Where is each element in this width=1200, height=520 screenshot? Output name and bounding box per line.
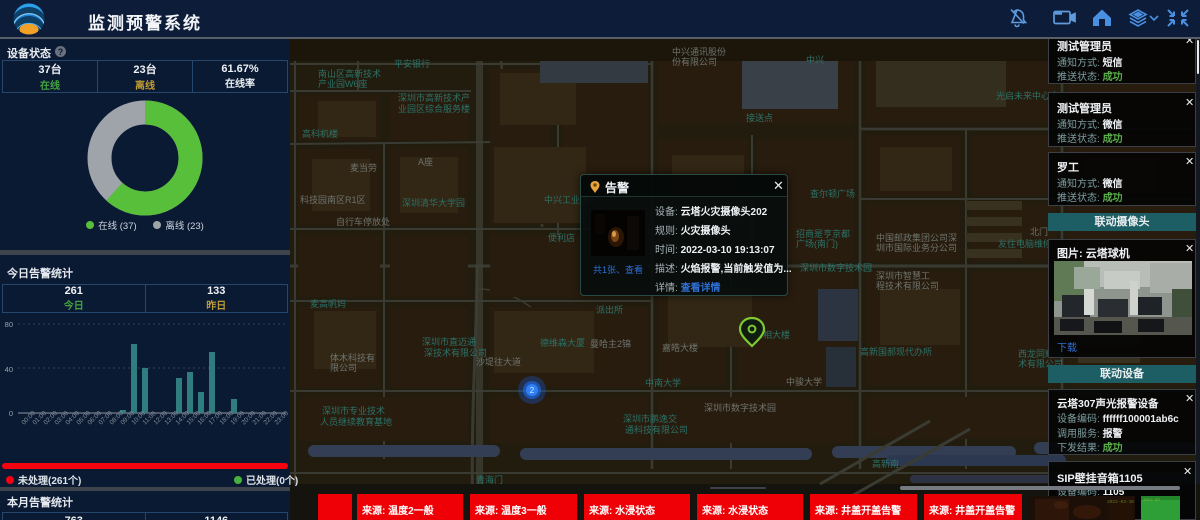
svg-text:德维森大厦: 德维森大厦 bbox=[540, 337, 585, 348]
svg-text:麦当劳: 麦当劳 bbox=[350, 162, 377, 173]
svg-text:中兴: 中兴 bbox=[806, 54, 824, 65]
svg-text:程技术有限公司: 程技术有限公司 bbox=[876, 280, 939, 291]
svg-text:北门: 北门 bbox=[1030, 226, 1048, 237]
svg-text:中南大学: 中南大学 bbox=[645, 377, 681, 388]
svg-text:限公司: 限公司 bbox=[330, 363, 357, 373]
svg-text:2: 2 bbox=[530, 386, 535, 395]
svg-text:深圳市专业技术: 深圳市专业技术 bbox=[322, 405, 385, 416]
svg-text:A座: A座 bbox=[418, 156, 433, 167]
svg-text:中骏大学: 中骏大学 bbox=[786, 376, 822, 387]
svg-text:份有限公司: 份有限公司 bbox=[672, 56, 717, 67]
svg-text:40: 40 bbox=[5, 365, 13, 374]
svg-text:南山区高新技术: 南山区高新技术 bbox=[318, 68, 381, 79]
svg-text:通科技有限公司: 通科技有限公司 bbox=[625, 424, 688, 435]
svg-text:青海门: 青海门 bbox=[476, 474, 503, 485]
svg-text:高科机楼: 高科机楼 bbox=[302, 128, 338, 139]
svg-text:2022-03: 2022-03 bbox=[1143, 499, 1160, 503]
svg-text:人员继续教育基地: 人员继续教育基地 bbox=[320, 416, 392, 427]
svg-text:科技园南区R1区: 科技园南区R1区 bbox=[300, 194, 366, 205]
svg-text:2022-03-10: 2022-03-10 bbox=[1107, 499, 1134, 505]
svg-text:平安银行: 平安银行 bbox=[394, 58, 430, 69]
svg-text:高新南: 高新南 bbox=[872, 458, 899, 469]
svg-text:接送点: 接送点 bbox=[746, 112, 773, 123]
svg-text:广场(南门): 广场(南门) bbox=[796, 238, 838, 249]
svg-text:深圳市直迈通: 深圳市直迈通 bbox=[422, 336, 476, 347]
svg-text:深圳市鹏逸交: 深圳市鹏逸交 bbox=[623, 413, 677, 424]
svg-text:麦高帆妈: 麦高帆妈 bbox=[310, 298, 346, 309]
svg-text:派出所: 派出所 bbox=[596, 304, 623, 315]
svg-text:0: 0 bbox=[9, 409, 13, 418]
svg-text:体木科技有: 体木科技有 bbox=[330, 352, 375, 363]
svg-text:圳市国际业务分公司: 圳市国际业务分公司 bbox=[876, 242, 957, 253]
svg-text:80: 80 bbox=[5, 320, 13, 329]
svg-text:深圳清华大学园: 深圳清华大学园 bbox=[402, 197, 465, 208]
svg-text:中兴通讯股份: 中兴通讯股份 bbox=[672, 46, 726, 57]
svg-text:查尔顿广场: 查尔顿广场 bbox=[810, 188, 855, 199]
svg-text:产业园W6座: 产业园W6座 bbox=[318, 78, 368, 89]
svg-text:深圳市高新技术产: 深圳市高新技术产 bbox=[398, 92, 470, 103]
svg-text:深圳市数字技术园: 深圳市数字技术园 bbox=[704, 402, 776, 413]
svg-text:便利店: 便利店 bbox=[548, 232, 575, 243]
svg-text:深圳市数字技术园: 深圳市数字技术园 bbox=[800, 262, 872, 273]
svg-text:沙堤往大道: 沙堤往大道 bbox=[476, 356, 521, 367]
svg-text:高新国郝现代办所: 高新国郝现代办所 bbox=[860, 346, 932, 357]
svg-text:友住电脑维修: 友住电脑维修 bbox=[998, 238, 1052, 249]
svg-text:嘉皓大楼: 嘉皓大楼 bbox=[662, 342, 698, 353]
svg-text:自行车停放处: 自行车停放处 bbox=[336, 216, 390, 227]
svg-text:中国邮政集团公司深: 中国邮政集团公司深 bbox=[876, 232, 957, 243]
svg-text:曼哈主2锦: 曼哈主2锦 bbox=[590, 338, 631, 349]
svg-text:业园区综合服务楼: 业园区综合服务楼 bbox=[398, 103, 470, 114]
svg-text:招商是亨京都: 招商是亨京都 bbox=[796, 228, 850, 239]
svg-text:深圳市智慧工: 深圳市智慧工 bbox=[876, 270, 930, 281]
